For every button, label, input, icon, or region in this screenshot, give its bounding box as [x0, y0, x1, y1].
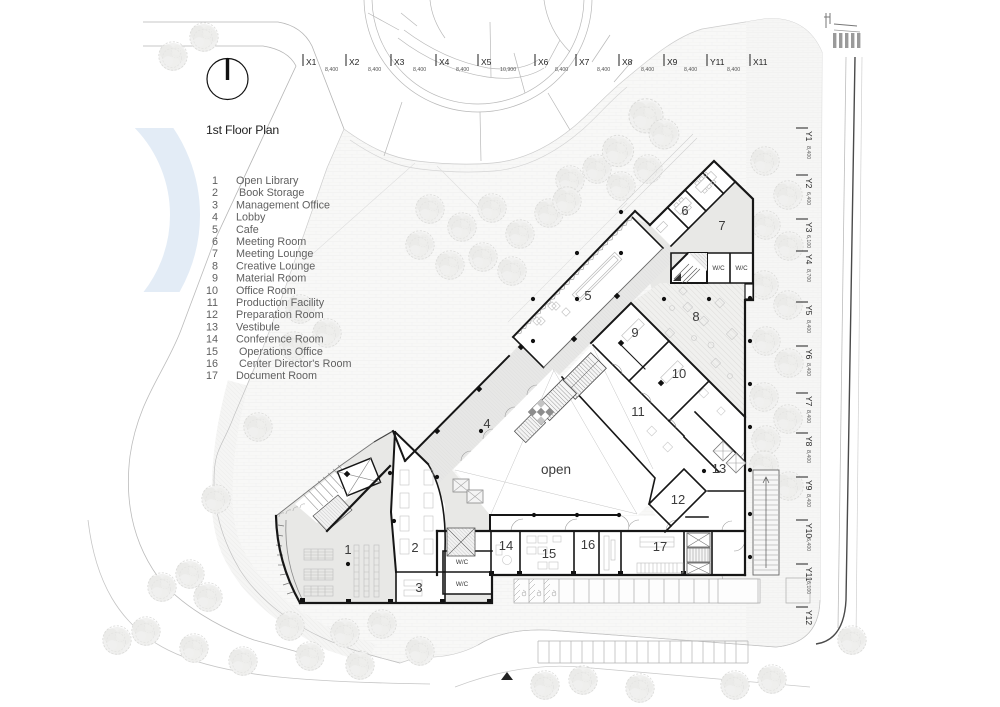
svg-text:Cafe: Cafe [236, 224, 259, 236]
svg-text:W/C: W/C [456, 581, 469, 588]
svg-text:13: 13 [206, 321, 218, 333]
svg-text:Open Library: Open Library [236, 175, 299, 187]
svg-text:7: 7 [212, 248, 218, 260]
svg-text:Production Facility: Production Facility [236, 297, 325, 309]
svg-text:2: 2 [212, 187, 218, 199]
svg-text:8: 8 [692, 309, 699, 324]
svg-text:Y7: Y7 [804, 396, 814, 407]
svg-text:12: 12 [671, 492, 685, 507]
svg-text:X9: X9 [667, 57, 678, 67]
svg-text:Y4: Y4 [804, 254, 814, 265]
svg-text:8,400: 8,400 [805, 410, 811, 423]
svg-text:Material Room: Material Room [236, 273, 306, 285]
svg-text:Y9: Y9 [804, 480, 814, 491]
svg-text:6,100: 6,100 [805, 235, 811, 248]
svg-text:8,400: 8,400 [805, 450, 811, 463]
svg-text:X5: X5 [481, 57, 492, 67]
svg-text:10: 10 [206, 285, 218, 297]
svg-text:Y8: Y8 [804, 436, 814, 447]
svg-text:17: 17 [206, 370, 218, 382]
svg-text:2: 2 [411, 540, 418, 555]
svg-text:9: 9 [631, 325, 638, 340]
svg-text:16: 16 [206, 358, 218, 370]
svg-text:Preparation Room: Preparation Room [236, 309, 324, 321]
svg-text:8,400: 8,400 [805, 320, 811, 333]
svg-text:16: 16 [581, 537, 595, 552]
svg-text:8,400: 8,400 [805, 363, 811, 376]
svg-text:6,400: 6,400 [805, 538, 811, 551]
svg-text:8,400: 8,400 [368, 67, 381, 73]
svg-text:11: 11 [631, 404, 645, 419]
svg-text:8,400: 8,400 [456, 67, 469, 73]
svg-text:X2: X2 [349, 57, 360, 67]
svg-text:Lobby: Lobby [236, 212, 266, 224]
svg-text:13: 13 [712, 461, 726, 476]
svg-text:5: 5 [584, 288, 591, 303]
svg-text:X1: X1 [306, 57, 317, 67]
svg-text:W/C: W/C [712, 265, 725, 272]
svg-text:Y11: Y11 [804, 567, 814, 582]
svg-text:X6: X6 [538, 57, 549, 67]
svg-text:Office Room: Office Room [236, 285, 296, 297]
svg-text:8,400: 8,400 [597, 67, 610, 73]
svg-text:14: 14 [499, 538, 513, 553]
svg-text:Y10: Y10 [804, 523, 814, 538]
svg-text:12: 12 [206, 309, 218, 321]
svg-text:6: 6 [212, 236, 218, 248]
svg-text:8,400: 8,400 [805, 146, 811, 159]
svg-text:15: 15 [542, 546, 556, 561]
svg-text:Management Office: Management Office [236, 199, 330, 211]
svg-text:Vestibule: Vestibule [236, 321, 280, 333]
svg-text:X7: X7 [579, 57, 590, 67]
svg-text:8,400: 8,400 [413, 67, 426, 73]
svg-text:X8: X8 [622, 57, 633, 67]
svg-text:8,400: 8,400 [684, 67, 697, 73]
svg-text:Y5: Y5 [804, 305, 814, 316]
svg-text:X3: X3 [394, 57, 405, 67]
svg-text:8,400: 8,400 [555, 67, 568, 73]
svg-text:9: 9 [212, 273, 218, 285]
svg-text:Y3: Y3 [804, 222, 814, 233]
svg-text:8,400: 8,400 [805, 494, 811, 507]
svg-text:X11: X11 [753, 57, 768, 67]
svg-text:Document Room: Document Room [236, 370, 317, 382]
svg-text:open: open [541, 462, 571, 477]
svg-text:Book Storage: Book Storage [239, 187, 304, 199]
svg-text:W/C: W/C [735, 265, 748, 272]
svg-text:Y6: Y6 [804, 349, 814, 360]
svg-text:Meeting Lounge: Meeting Lounge [236, 248, 313, 260]
svg-text:8,400: 8,400 [325, 67, 338, 73]
svg-text:8,700: 8,700 [805, 269, 811, 282]
svg-text:8: 8 [212, 260, 218, 272]
svg-text:W/C: W/C [456, 559, 469, 566]
svg-text:14: 14 [206, 334, 218, 346]
svg-text:6: 6 [681, 203, 688, 218]
svg-text:10,900: 10,900 [500, 67, 516, 73]
svg-text:Creative Lounge: Creative Lounge [236, 260, 315, 272]
svg-text:4: 4 [483, 416, 490, 431]
svg-text:Meeting Room: Meeting Room [236, 236, 306, 248]
svg-text:10: 10 [672, 366, 686, 381]
svg-text:7: 7 [718, 218, 725, 233]
svg-text:3: 3 [212, 199, 218, 211]
svg-text:Y11: Y11 [710, 57, 725, 67]
svg-text:5: 5 [212, 224, 218, 236]
svg-text:Center Director's Room: Center Director's Room [239, 358, 351, 370]
svg-text:Operations Office: Operations Office [239, 346, 323, 358]
svg-text:4: 4 [212, 212, 218, 224]
svg-text:Y2: Y2 [804, 178, 814, 189]
svg-text:11: 11 [207, 297, 218, 309]
svg-text:8,400: 8,400 [641, 67, 654, 73]
svg-text:Y12: Y12 [804, 610, 814, 625]
svg-text:Y1: Y1 [804, 131, 814, 142]
svg-text:Conference Room: Conference Room [236, 334, 324, 346]
svg-text:8,400: 8,400 [727, 67, 740, 73]
svg-text:1st Floor Plan: 1st Floor Plan [206, 123, 279, 137]
svg-text:1: 1 [212, 175, 218, 187]
svg-text:17: 17 [653, 539, 667, 554]
svg-text:1: 1 [344, 542, 351, 557]
svg-text:15: 15 [206, 346, 218, 358]
svg-text:X4: X4 [439, 57, 450, 67]
svg-text:3: 3 [415, 580, 422, 595]
svg-text:6,400: 6,400 [805, 192, 811, 205]
